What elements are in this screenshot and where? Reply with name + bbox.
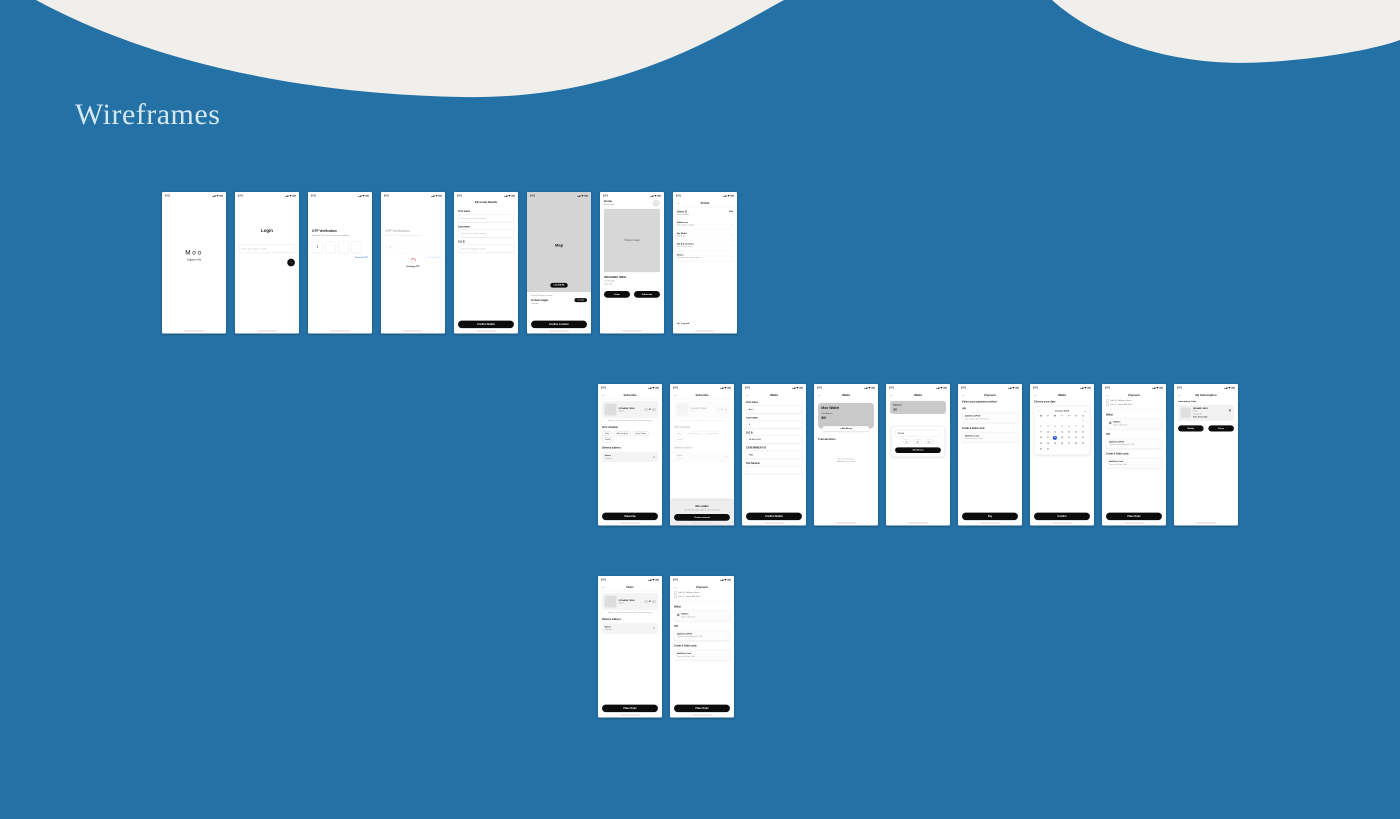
screen-body: Choose your date‹January 2023›MTWTFSS123… xyxy=(1030,398,1094,525)
text-input[interactable]: Enter your mobile number xyxy=(458,229,514,237)
text-input[interactable]: 08-Mar-2001 xyxy=(746,436,802,444)
primary-button[interactable]: Place Order xyxy=(674,705,730,712)
location-row: Ashok nagarChange xyxy=(531,298,587,302)
wifi-icon xyxy=(1084,387,1086,389)
schedule-chips: DailyAlternate daysEvery 3 daysWeekly xyxy=(674,431,730,442)
otp-digit[interactable]: 1 xyxy=(312,241,322,253)
primary-button[interactable]: Subscribe xyxy=(602,513,658,520)
screen-body: ORGANIC MILK500ml−01+Take note: you can … xyxy=(598,591,662,717)
address-subtitle: Chennai xyxy=(605,629,653,631)
list-item-title: My Wallet xyxy=(677,232,732,234)
status-time: 9:41 xyxy=(311,195,316,197)
list-item[interactable]: My SubscriptionEdit, Pause & cancel› xyxy=(677,240,733,251)
back-arrow-icon[interactable]: ← xyxy=(602,393,605,397)
payment-option-title: Add New Card xyxy=(965,435,983,437)
home-title: Home xyxy=(604,199,614,202)
order-info-icon xyxy=(1106,399,1109,402)
calendar-day xyxy=(1060,447,1064,451)
phone-home: 9:41HomeAshok nagarProduct ImageORGANIC … xyxy=(600,192,664,334)
payment-option-card[interactable]: Add New CardSave and Pay via Cards xyxy=(1106,458,1162,469)
screen-home: 9:41HomeAshok nagarProduct ImageORGANIC … xyxy=(600,192,664,333)
order-info-icon xyxy=(674,591,677,594)
battery-icon xyxy=(655,579,659,581)
button-row: OrderSubscribe xyxy=(604,291,660,298)
status-bar: 9:41 xyxy=(598,576,662,582)
text-input[interactable] xyxy=(746,466,802,474)
status-time: 9:41 xyxy=(889,387,894,389)
action-button[interactable]: Order xyxy=(604,291,630,298)
status-icons xyxy=(286,195,296,197)
schedule-chips: DailyAlternate daysEvery 3 daysWeekly xyxy=(602,431,658,442)
text-input[interactable]: Arun xyxy=(746,405,802,413)
verifying-overlay: Verifying OTP xyxy=(381,258,445,267)
schedule-chip[interactable]: Every 3 days xyxy=(705,431,721,436)
otp-digit[interactable] xyxy=(411,241,421,253)
status-icons xyxy=(724,195,734,197)
form-field: D.O.B08-Mar-2001 xyxy=(746,428,802,443)
edit-link[interactable]: Edit xyxy=(729,211,733,213)
home-header: HomeAshok nagar xyxy=(604,199,660,206)
calendar-day[interactable]: 5 xyxy=(1060,424,1064,428)
calendar-day[interactable]: 28 xyxy=(1074,442,1078,446)
section-label: UPI xyxy=(962,408,1018,410)
map-label: Map xyxy=(555,243,563,248)
battery-icon xyxy=(799,387,803,389)
calendar-prev-icon[interactable]: ‹ xyxy=(1038,410,1039,413)
screen-personal: 9:41Personal DetailsFirst nameEnter your… xyxy=(454,192,518,333)
calendar-day[interactable]: 10 xyxy=(1046,430,1050,434)
status-time: 9:41 xyxy=(961,387,966,389)
phone-wallet_add: 9:41←WalletBalance$0$ 500050100500Add Mo… xyxy=(886,384,950,526)
nav-bar: ←Wallet xyxy=(1030,391,1094,398)
calendar-day[interactable]: 3 xyxy=(1046,424,1050,428)
text-input[interactable]: Enter your mobile number xyxy=(458,214,514,222)
screen-map: 9:41MapLOCATE MESelect Delivery Location… xyxy=(527,192,591,333)
list-item[interactable]: My WalletAdd Money› xyxy=(677,229,733,240)
field-label: GOVERNMENT ID xyxy=(746,447,802,449)
action-button[interactable]: Pause xyxy=(1208,425,1234,431)
calendar-day[interactable]: 6 xyxy=(1067,424,1071,428)
add-money-card: $ 500050100500Add Money xyxy=(891,426,944,457)
logout-button[interactable]: ↪Log out xyxy=(677,322,733,326)
screen-my_subscription: 9:41←My Subscriptionsubscription: DailyO… xyxy=(1174,384,1238,525)
home-indicator xyxy=(908,522,928,523)
payment-option-subtitle: Balance: $4700.35 xyxy=(681,616,695,618)
minus-icon[interactable]: − xyxy=(717,408,720,411)
screen-body: subscription: DailyORGANIC MILK500mlQuan… xyxy=(1174,398,1238,525)
calendar-day[interactable]: 24 xyxy=(1046,442,1050,446)
payment-option-card[interactable]: WalletsBalance: $4700.35 xyxy=(1106,418,1162,429)
address-card[interactable]: HomeChennai✎ xyxy=(602,623,658,633)
calendar-day[interactable]: 9 xyxy=(1039,430,1043,434)
form-field: GOVERNMENT IDPAN xyxy=(746,444,802,459)
status-bar: 9:41 xyxy=(1030,384,1094,390)
status-icons xyxy=(213,195,223,197)
action-button[interactable]: Modify xyxy=(1178,425,1204,431)
nav-title: Payment xyxy=(674,585,730,588)
section-heading: Choose your date xyxy=(1034,400,1090,403)
schedule-chip[interactable]: Weekly xyxy=(674,438,686,443)
product-name: ORGANIC MILK xyxy=(691,407,715,409)
radio-selected-icon[interactable] xyxy=(677,614,679,616)
calendar-day[interactable]: 25 xyxy=(1053,442,1057,446)
phone-map: 9:41MapLOCATE MESelect Delivery Location… xyxy=(527,192,591,334)
home-indicator xyxy=(549,330,569,331)
payment-option-subtitle: Checkout in your registered UPI ID xyxy=(677,636,702,638)
signal-icon xyxy=(1225,387,1228,389)
quantity-stepper[interactable]: −01+ xyxy=(645,600,656,603)
note-text: Take note: you can change or pause your … xyxy=(602,612,658,614)
calendar-day[interactable]: 23 xyxy=(1039,442,1043,446)
schedule-chip[interactable]: Alternate days xyxy=(614,431,631,436)
calendar-day[interactable]: 12 xyxy=(1060,430,1064,434)
locate-me-button[interactable]: LOCATE ME xyxy=(550,283,568,288)
payment-option-card[interactable]: Add New CardSave and Pay via Cards xyxy=(962,432,1018,443)
screen-wallet_add: 9:41←WalletBalance$0$ 500050100500Add Mo… xyxy=(886,384,950,525)
text-input[interactable]: Enter your mobile number xyxy=(458,245,514,253)
quantity-stepper[interactable]: −01+ xyxy=(717,408,728,411)
section-heading: Select your payment method xyxy=(962,400,1018,403)
payment-option-subtitle: Checkout in your registered UPI ID xyxy=(1109,444,1134,446)
note-text: Take note: you can change or pause your … xyxy=(674,420,730,422)
primary-button[interactable]: Confirm Details xyxy=(458,321,514,328)
button-row: ModifyPause xyxy=(1178,425,1234,431)
nav-bar: ←Payment xyxy=(670,583,734,590)
status-icons xyxy=(649,387,659,389)
calendar-day xyxy=(1039,419,1043,423)
phone-payment_order: 9:41←PaymentTotal: $4 · Delivery at: Hom… xyxy=(670,576,734,718)
radio-selected-icon[interactable] xyxy=(1109,422,1111,424)
schedule-chip[interactable]: Daily xyxy=(602,431,612,436)
wifi-icon xyxy=(652,387,654,389)
signal-icon xyxy=(721,387,724,389)
form-field: First nameArun xyxy=(746,398,802,413)
text-input[interactable]: PAN xyxy=(746,451,802,459)
address-card[interactable]: HomeChennai✎ xyxy=(602,452,658,462)
edit-address-icon[interactable]: ✎ xyxy=(653,627,655,630)
payment-option-card[interactable]: Add New CardSave and Pay via Cards xyxy=(674,650,730,661)
screen-profile: 9:41←ProfileArun SPhone numberEditAddres… xyxy=(673,192,737,333)
spacer xyxy=(385,198,441,229)
trash-icon[interactable] xyxy=(1229,408,1232,418)
weekday-label: M xyxy=(1040,415,1042,417)
calendar-grid: MTWTFSS123456789101112131415161718192021… xyxy=(1037,415,1086,451)
battery-icon xyxy=(943,387,947,389)
nav-title: My Subscription xyxy=(1178,393,1234,396)
section-heading: ORGANIC MILK xyxy=(604,276,660,279)
calendar-day[interactable]: 22 xyxy=(1081,436,1085,440)
screen-wallet_home: 9:41←WalletMoo WalletTotal Balance$0XXXX… xyxy=(814,384,878,525)
back-arrow-icon[interactable]: ← xyxy=(962,393,965,397)
resend-otp-link[interactable]: Resend OTP xyxy=(312,256,368,258)
wallet-masked-number: XXXX XXXX XXXX xyxy=(821,423,870,425)
status-time: 9:41 xyxy=(817,387,822,389)
payment-option-subtitle: Save and Pay via Cards xyxy=(1109,464,1127,466)
calendar-next-icon[interactable]: › xyxy=(1085,410,1086,413)
calendar-day[interactable]: 8 xyxy=(1081,424,1085,428)
primary-button[interactable]: Pay xyxy=(962,513,1018,520)
subtext: Enter the OTP sent to your email address xyxy=(312,234,368,236)
status-time: 9:41 xyxy=(165,195,170,197)
calendar-day[interactable]: 7 xyxy=(1074,424,1078,428)
calendar-day[interactable]: 11 xyxy=(1053,430,1057,434)
calendar-day[interactable]: 26 xyxy=(1060,442,1064,446)
minus-icon[interactable]: − xyxy=(645,408,648,411)
status-time: 9:41 xyxy=(601,579,606,581)
phone-subscribe_sheet: 9:41←SubscribeORGANIC MILK500ml−01+Take … xyxy=(670,384,734,526)
calendar-day[interactable]: 15 xyxy=(1081,430,1085,434)
address-title: Home xyxy=(605,626,653,628)
create-account-button[interactable]: Create account xyxy=(674,514,730,521)
status-bar: 9:41 xyxy=(673,192,737,198)
calendar-day[interactable]: 29 xyxy=(1081,442,1085,446)
schedule-chip[interactable]: Weekly xyxy=(602,438,614,443)
payment-option-title: Add New UPI ID xyxy=(677,633,702,635)
note-text: Take note: you can change or pause your … xyxy=(602,420,658,422)
wifi-icon xyxy=(654,195,656,197)
back-arrow-icon[interactable]: ← xyxy=(890,393,893,397)
calendar-day[interactable]: 21 xyxy=(1074,436,1078,440)
sheet-subtitle: You will need a Moo wallet to subscribe … xyxy=(674,509,730,511)
back-arrow-icon[interactable]: ← xyxy=(677,201,680,205)
page-title: Wireframes xyxy=(75,98,220,132)
back-arrow-icon[interactable]: ← xyxy=(1034,393,1037,397)
calendar-day xyxy=(1074,447,1078,451)
list-item[interactable]: AddressesAdd & edit your address› xyxy=(677,219,733,230)
otp-digit[interactable] xyxy=(351,241,361,253)
calendar-day[interactable]: 27 xyxy=(1067,442,1071,446)
battery-icon xyxy=(438,195,442,197)
order-summary-text: Item: 01 · Organic Milk 500ml xyxy=(1110,404,1132,406)
home-indicator xyxy=(257,330,277,331)
order-summary-row: Item: 01 · Organic Milk 500ml xyxy=(1106,404,1162,407)
wifi-icon xyxy=(724,387,726,389)
section-label: Delivery address xyxy=(602,447,658,449)
add-money-button[interactable]: + Add Money xyxy=(823,426,869,431)
otp-digit[interactable] xyxy=(398,241,408,253)
logout-icon: ↪ xyxy=(677,322,680,326)
status-icons xyxy=(1081,387,1091,389)
list-item[interactable]: StatusCheck the status of your orders› xyxy=(677,251,733,262)
calendar-day[interactable]: 31 xyxy=(1046,447,1050,451)
phone-wallet_calendar: 9:41←WalletChoose your date‹January 2023… xyxy=(1030,384,1094,526)
subscription-until: Until: 18-Jan-2023 xyxy=(1193,416,1227,418)
back-arrow-icon[interactable]: ← xyxy=(818,393,821,397)
status-bar: 9:41 xyxy=(814,384,878,390)
section-label: Delivery address xyxy=(674,447,730,449)
status-time: 9:41 xyxy=(530,195,535,197)
schedule-chip[interactable]: Alternate days xyxy=(686,431,703,436)
calendar: ‹January 2023›MTWTFSS1234567891011121314… xyxy=(1034,406,1090,454)
status-time: 9:41 xyxy=(601,387,606,389)
payment-option-card[interactable]: WalletsBalance: $4700.35 xyxy=(674,610,730,621)
payment-option-title: Wallets xyxy=(681,613,695,615)
amount-chip[interactable]: 500 xyxy=(924,440,933,444)
home-indicator xyxy=(695,330,715,331)
calendar-day[interactable]: 20 xyxy=(1067,436,1071,440)
payment-option-card[interactable]: Add New UPI IDCheckout in your registere… xyxy=(1106,438,1162,449)
avatar[interactable] xyxy=(653,199,660,206)
primary-button[interactable]: Confirm Location xyxy=(531,321,587,328)
screen-splash: 9:41MooOrganic milk xyxy=(162,192,226,333)
text-input[interactable]: Enter your mobile number xyxy=(239,245,295,253)
weekday-label: W xyxy=(1054,415,1056,417)
status-bar: 9:41 xyxy=(886,384,950,390)
home-indicator xyxy=(1124,522,1144,523)
primary-button[interactable]: Place Order xyxy=(602,705,658,712)
signal-icon xyxy=(649,579,652,581)
schedule-chip[interactable]: Daily xyxy=(674,431,684,436)
screen-body: HomeAshok nagarProduct ImageORGANIC MILK… xyxy=(600,198,664,333)
add-money-button[interactable]: Add Money xyxy=(895,447,941,453)
otp-digit[interactable] xyxy=(424,241,434,253)
calendar-day[interactable]: 16 xyxy=(1039,436,1043,440)
status-icons xyxy=(865,387,875,389)
section-heading: Transactions xyxy=(818,437,874,440)
section-label: Credit & Debit cards xyxy=(962,427,1018,429)
phone-profile: 9:41←ProfileArun SPhone numberEditAddres… xyxy=(673,192,737,334)
section-label: subscription: Daily xyxy=(1178,401,1234,403)
product-thumbnail xyxy=(604,596,616,608)
otp-digit[interactable] xyxy=(325,241,335,253)
payment-option-card[interactable]: Add New UPI IDCheckout in your registere… xyxy=(674,630,730,641)
phone-order: 9:41←OrderORGANIC MILK500ml−01+Take note… xyxy=(598,576,662,718)
loading-spinner-icon xyxy=(410,257,417,264)
product-thumbnail xyxy=(604,404,616,416)
wifi-icon xyxy=(435,195,437,197)
form-field: Pan Number xyxy=(746,459,802,474)
order-info-icon xyxy=(674,596,677,599)
section-heading: OTP Verification xyxy=(385,229,441,233)
continue-button[interactable]: → xyxy=(287,259,295,267)
primary-button[interactable]: Confirm Details xyxy=(746,513,802,520)
address-subtitle: Chennai xyxy=(677,457,725,459)
status-time: 9:41 xyxy=(384,195,389,197)
action-button[interactable]: Subscribe xyxy=(634,291,660,298)
otp-inputs: 1 xyxy=(312,241,368,253)
otp-digit[interactable]: 1 xyxy=(385,241,395,253)
list-item-title: Status xyxy=(677,254,732,256)
status-icons xyxy=(1009,387,1019,389)
payment-option-title: Add New UPI ID xyxy=(1109,441,1134,443)
chevron-right-icon: › xyxy=(732,233,733,236)
phone-personal: 9:41Personal DetailsFirst nameEnter your… xyxy=(454,192,518,334)
edit-address-icon[interactable]: ✎ xyxy=(653,455,655,458)
amount-input[interactable]: $ 5000 xyxy=(895,430,941,437)
wifi-icon xyxy=(1012,387,1014,389)
calendar-day[interactable]: 13 xyxy=(1067,430,1071,434)
amount-chip[interactable]: 50 xyxy=(903,440,911,444)
primary-button[interactable]: Place Order xyxy=(1106,513,1162,520)
status-icons xyxy=(793,387,803,389)
phone-otp_verify: 9:41OTP VerificationEnter the OTP sent t… xyxy=(381,192,445,334)
nav-title: Order xyxy=(602,585,658,588)
plus-icon[interactable]: + xyxy=(724,408,727,411)
status-icons xyxy=(359,195,369,197)
product-name: ORGANIC MILK xyxy=(619,407,643,409)
wallet-balance: $0 xyxy=(821,415,870,420)
payment-option-title: Add New Card xyxy=(677,653,695,655)
field-label: First name xyxy=(458,211,514,213)
calendar-day[interactable]: 17 xyxy=(1046,436,1050,440)
form-field: Last nameEnter your mobile number xyxy=(458,222,514,237)
calendar-day[interactable]: 2 xyxy=(1039,424,1043,428)
schedule-chip[interactable]: Every 3 days xyxy=(633,431,649,436)
section-label: Delivery address xyxy=(602,618,658,620)
order-info-icon xyxy=(1106,404,1109,407)
battery-icon xyxy=(1087,387,1091,389)
calendar-day[interactable]: 19 xyxy=(1060,436,1064,440)
balance-card: Balance$0 xyxy=(890,401,946,414)
payment-option-title: Add New UPI ID xyxy=(965,415,988,417)
status-icons xyxy=(505,195,515,197)
calendar-day[interactable]: 4 xyxy=(1053,424,1057,428)
subscription-card: ORGANIC MILK500mlQuantity: 01Until: 18-J… xyxy=(1178,405,1234,421)
section-label: UPI xyxy=(1106,433,1162,435)
payment-option-card[interactable]: Add New UPI IDPay using any registered U… xyxy=(962,412,1018,423)
status-bar: 9:41 xyxy=(958,384,1022,390)
order-summary-row: Total: $4 · Delivery at: Home xyxy=(1106,399,1162,402)
calendar-day[interactable]: 14 xyxy=(1074,430,1078,434)
home-indicator xyxy=(620,714,640,715)
primary-button[interactable]: Confirm xyxy=(1034,513,1090,520)
signal-icon xyxy=(505,195,508,197)
signal-icon xyxy=(937,387,940,389)
calendar-day xyxy=(1060,419,1064,423)
otp-inputs: 1 xyxy=(385,241,441,253)
calendar-day[interactable]: 1 xyxy=(1081,419,1085,423)
signal-icon xyxy=(649,387,652,389)
screen-subscribe: 9:41←SubscribeORGANIC MILK500ml−01+Take … xyxy=(598,384,662,525)
calendar-day[interactable]: 30 xyxy=(1039,447,1043,451)
edit-address-icon[interactable]: ✎ xyxy=(725,455,727,458)
home-indicator xyxy=(836,522,856,523)
app-tagline: Organic milk xyxy=(166,258,222,261)
back-arrow-icon[interactable]: ← xyxy=(602,585,605,589)
minus-icon[interactable]: − xyxy=(645,600,648,603)
screen-body: MapLOCATE MESelect Delivery LocationAsho… xyxy=(527,198,591,333)
back-arrow-icon[interactable]: ← xyxy=(674,585,677,589)
list-item-subtitle: Check the status of your orders xyxy=(677,257,732,259)
calendar-day[interactable]: 18 xyxy=(1053,436,1057,440)
battery-icon xyxy=(1015,387,1019,389)
plus-icon[interactable]: + xyxy=(652,600,655,603)
quantity-value: 01 xyxy=(721,409,723,411)
amount-chip[interactable]: 100 xyxy=(913,440,922,444)
address-card[interactable]: HomeChennai✎ xyxy=(674,452,730,462)
text-input[interactable]: S xyxy=(746,420,802,428)
screen-body: ORGANIC MILK500ml−01+Take note: you can … xyxy=(598,399,662,525)
battery-icon xyxy=(655,387,659,389)
home-indicator xyxy=(620,522,640,523)
map-placeholder: MapLOCATE ME xyxy=(527,198,591,292)
nav-title: Wallet xyxy=(890,393,946,396)
payment-option-subtitle: Pay using any registered UPI ID xyxy=(965,418,988,420)
change-button[interactable]: Change xyxy=(574,298,587,302)
nav-bar: ←Order xyxy=(598,583,662,590)
back-arrow-icon[interactable]: ← xyxy=(746,393,749,397)
back-arrow-icon[interactable]: ← xyxy=(674,393,677,397)
quantity-stepper[interactable]: −01+ xyxy=(645,408,656,411)
calendar-day xyxy=(1081,447,1085,451)
address-subtitle: Chennai xyxy=(605,457,653,459)
otp-digit[interactable] xyxy=(338,241,348,253)
subtext: Enter the OTP sent to your email address xyxy=(385,234,441,236)
section-label: Pick schedule xyxy=(674,426,730,428)
back-arrow-icon[interactable]: ← xyxy=(1106,393,1109,397)
plus-icon[interactable]: + xyxy=(652,408,655,411)
back-arrow-icon[interactable]: ← xyxy=(1178,393,1181,397)
